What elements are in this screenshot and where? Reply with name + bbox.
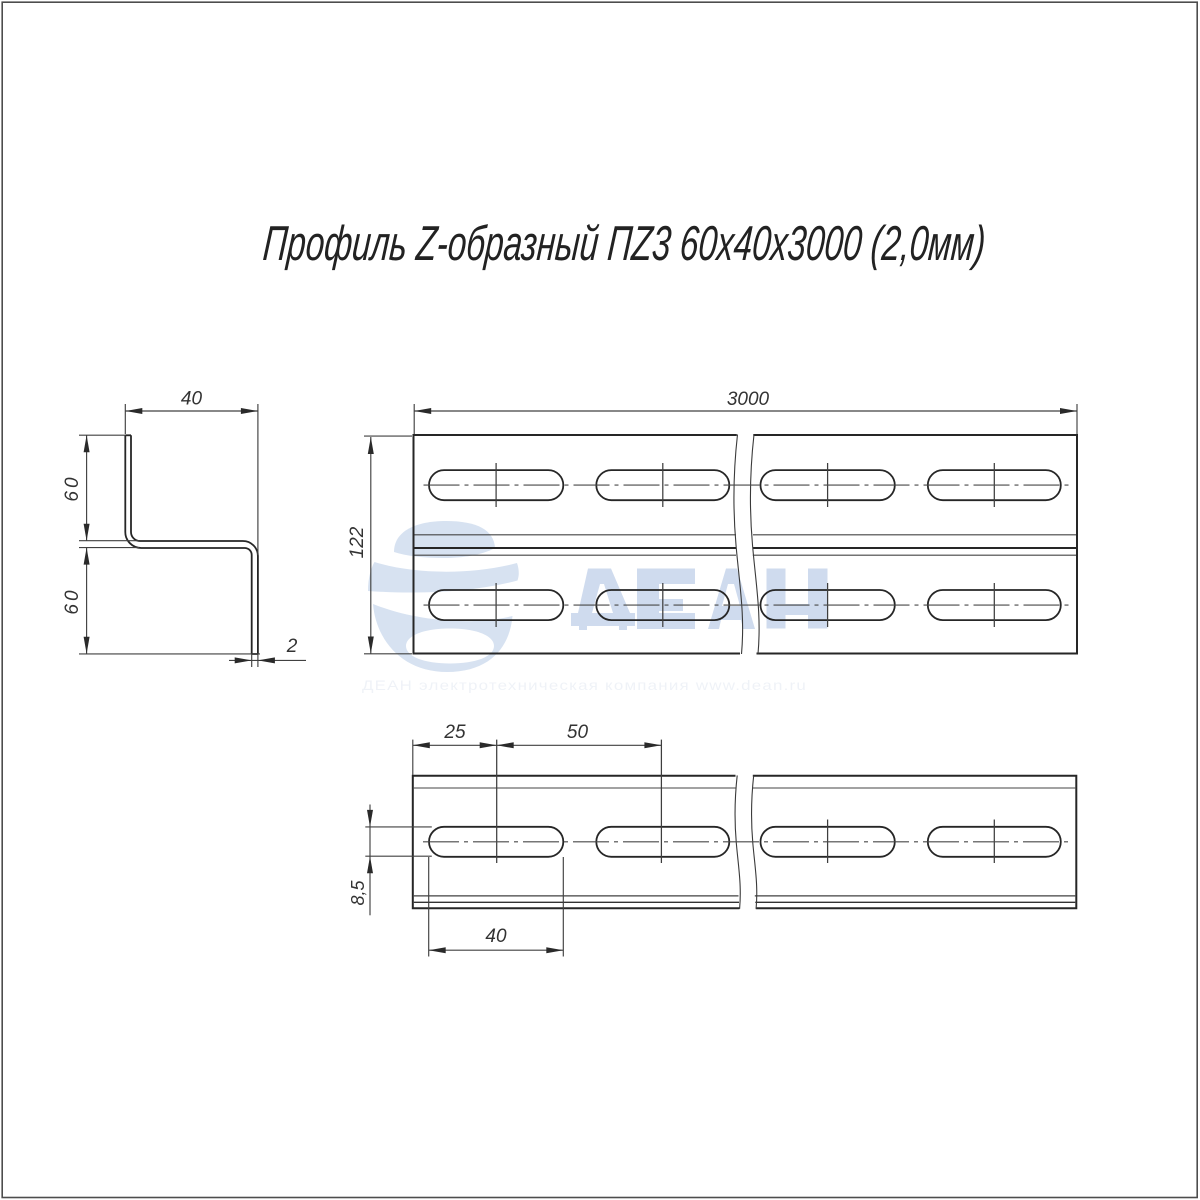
- svg-text:8,5: 8,5: [348, 880, 368, 906]
- svg-text:40: 40: [485, 926, 507, 947]
- svg-text:Профиль Z-образный ПZ3 60х40х3: Профиль Z-образный ПZ3 60х40х3000 (2,0мм…: [261, 216, 988, 271]
- svg-text:40: 40: [181, 389, 203, 410]
- svg-text:2: 2: [286, 636, 298, 657]
- svg-text:ДЕАН электротехническая компан: ДЕАН электротехническая компания www.dea…: [362, 677, 807, 693]
- svg-text:60: 60: [62, 474, 83, 501]
- svg-text:122: 122: [347, 526, 368, 558]
- svg-text:60: 60: [62, 587, 83, 614]
- svg-text:50: 50: [567, 722, 589, 743]
- svg-text:3000: 3000: [727, 389, 770, 410]
- svg-text:25: 25: [443, 722, 466, 743]
